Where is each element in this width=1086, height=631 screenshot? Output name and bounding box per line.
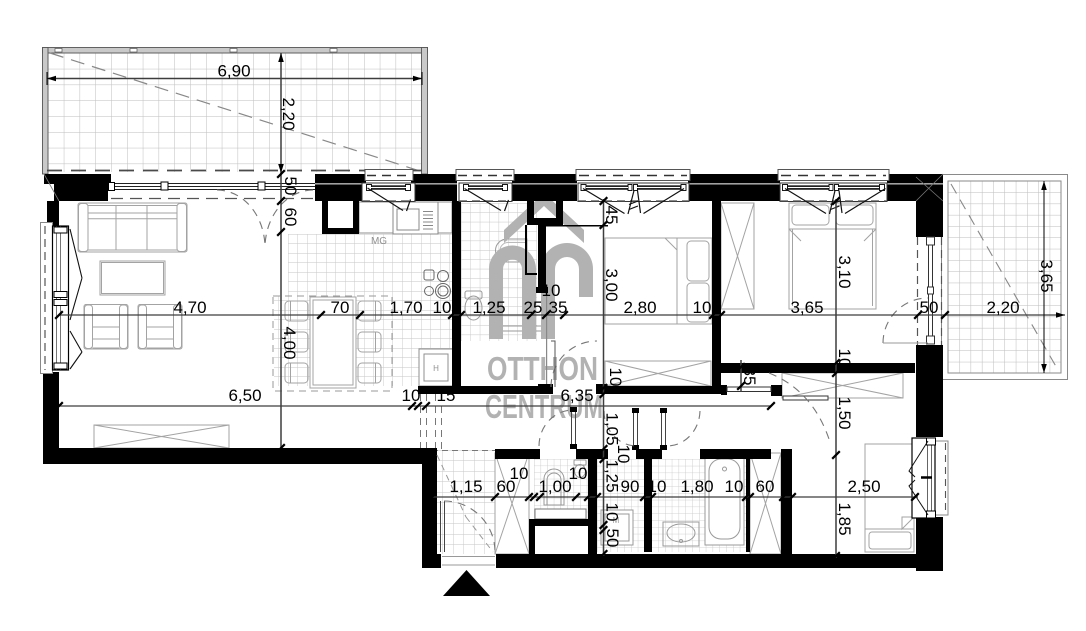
svg-text:H: H [433, 364, 439, 373]
svg-text:1,25: 1,25 [603, 459, 622, 492]
svg-text:1,25: 1,25 [472, 298, 505, 317]
svg-text:10: 10 [648, 477, 667, 496]
svg-text:OTTHON: OTTHON [487, 350, 598, 387]
svg-text:60: 60 [281, 208, 300, 227]
svg-text:2,20: 2,20 [279, 97, 298, 130]
svg-text:50: 50 [603, 529, 622, 548]
svg-text:3,10: 3,10 [835, 255, 854, 288]
svg-text:1,15: 1,15 [449, 477, 482, 496]
svg-text:4,00: 4,00 [280, 326, 299, 359]
svg-text:10: 10 [693, 298, 712, 317]
svg-text:35: 35 [549, 298, 568, 317]
svg-text:3,00: 3,00 [602, 268, 621, 301]
svg-text:3,65: 3,65 [790, 298, 823, 317]
svg-text:10: 10 [725, 477, 744, 496]
svg-text:2,50: 2,50 [847, 477, 880, 496]
svg-text:10: 10 [542, 281, 561, 300]
svg-text:1,50: 1,50 [835, 396, 854, 429]
svg-text:50: 50 [920, 298, 939, 317]
svg-text:2,80: 2,80 [623, 298, 656, 317]
svg-text:50: 50 [281, 177, 300, 196]
svg-text:60: 60 [756, 477, 775, 496]
svg-text:10: 10 [569, 464, 588, 483]
svg-text:6,35: 6,35 [560, 386, 593, 405]
svg-text:1,70: 1,70 [389, 298, 422, 317]
svg-text:10: 10 [402, 386, 421, 405]
svg-text:1,05: 1,05 [603, 412, 622, 445]
svg-text:10: 10 [433, 298, 452, 317]
svg-text:45: 45 [602, 206, 621, 225]
svg-text:10: 10 [606, 368, 625, 387]
svg-text:1,00: 1,00 [538, 477, 571, 496]
svg-text:2,20: 2,20 [986, 298, 1019, 317]
svg-text:10: 10 [510, 464, 529, 483]
svg-text:1,80: 1,80 [680, 477, 713, 496]
svg-text:90: 90 [621, 477, 640, 496]
svg-text:15: 15 [437, 386, 456, 405]
svg-text:70: 70 [331, 298, 350, 317]
svg-text:25: 25 [524, 298, 543, 317]
svg-text:35: 35 [740, 367, 759, 386]
svg-text:MG: MG [371, 236, 387, 247]
svg-text:1,85: 1,85 [835, 502, 854, 535]
svg-text:3,65: 3,65 [1037, 259, 1056, 292]
svg-text:10: 10 [603, 503, 622, 522]
svg-text:6,90: 6,90 [217, 62, 250, 81]
svg-text:10: 10 [835, 349, 854, 368]
svg-text:4,70: 4,70 [173, 298, 206, 317]
svg-text:6,50: 6,50 [228, 386, 261, 405]
